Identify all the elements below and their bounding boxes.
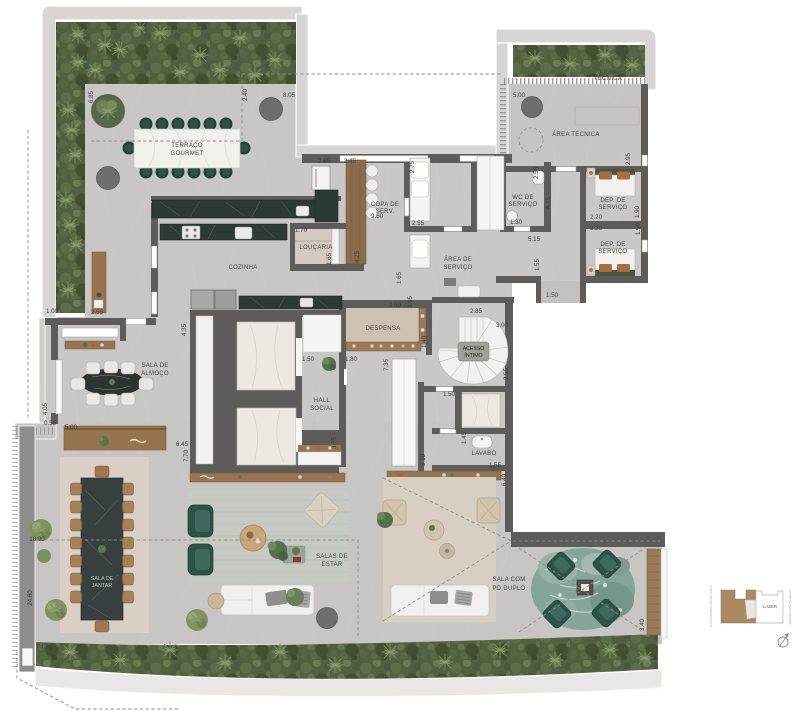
svg-text:1.65: 1.65: [326, 252, 333, 265]
svg-text:SOCIAL: SOCIAL: [310, 406, 334, 412]
svg-text:2.20: 2.20: [590, 214, 603, 221]
svg-text:5.15: 5.15: [528, 236, 541, 243]
svg-text:SERVIÇO: SERVIÇO: [509, 202, 538, 208]
svg-text:1.80: 1.80: [345, 356, 358, 363]
svg-text:SERVIÇO: SERVIÇO: [599, 205, 628, 211]
svg-text:1.50: 1.50: [546, 292, 559, 299]
svg-text:4.05: 4.05: [42, 402, 49, 415]
svg-text:COZINHA: COZINHA: [228, 265, 257, 271]
svg-text:2.45: 2.45: [344, 158, 357, 165]
svg-text:SALA COM: SALA COM: [492, 577, 525, 583]
svg-text:1.90: 1.90: [634, 205, 641, 218]
svg-text:0.55: 0.55: [44, 420, 57, 427]
svg-text:2.65: 2.65: [318, 158, 331, 165]
svg-text:4.25: 4.25: [354, 250, 361, 263]
svg-text:24.60: 24.60: [27, 590, 34, 606]
svg-text:DEP. DE: DEP. DE: [600, 198, 625, 204]
svg-text:DESPENSA: DESPENSA: [365, 326, 400, 332]
svg-text:6.85: 6.85: [88, 90, 95, 103]
svg-text:4.10: 4.10: [160, 227, 173, 234]
svg-text:2.85: 2.85: [470, 308, 483, 315]
svg-text:1.70: 1.70: [295, 227, 308, 234]
svg-text:7.35: 7.35: [383, 358, 390, 371]
svg-text:7.70: 7.70: [183, 449, 190, 462]
svg-text:6.40: 6.40: [501, 473, 508, 486]
svg-text:3.05: 3.05: [407, 295, 414, 308]
svg-text:1.55: 1.55: [489, 462, 502, 469]
svg-text:2.75: 2.75: [409, 160, 416, 173]
svg-text:2.95: 2.95: [625, 152, 632, 165]
svg-text:1.65: 1.65: [396, 271, 403, 284]
svg-text:SALAS DE: SALAS DE: [316, 554, 348, 560]
svg-text:6.45: 6.45: [176, 441, 189, 448]
svg-text:2.55: 2.55: [533, 166, 540, 179]
svg-text:ÁREA DE: ÁREA DE: [444, 256, 472, 263]
svg-text:ÍNTIMO: ÍNTIMO: [464, 352, 482, 359]
svg-text:WC DE: WC DE: [512, 195, 534, 201]
svg-text:8.05: 8.05: [283, 92, 296, 99]
svg-text:ÁREA TÉCNICA: ÁREA TÉCNICA: [552, 131, 600, 138]
svg-text:ÁREA: ÁREA: [599, 69, 617, 76]
svg-text:SALA DE: SALA DE: [141, 363, 168, 369]
svg-text:JANTAR: JANTAR: [92, 583, 113, 589]
svg-text:PD DUPLO: PD DUPLO: [492, 586, 525, 592]
svg-text:HALL: HALL: [314, 398, 331, 404]
svg-text:2.40: 2.40: [242, 88, 249, 101]
svg-text:ACESSO: ACESSO: [463, 346, 485, 352]
svg-text:SERVIÇO: SERVIÇO: [444, 265, 473, 271]
svg-text:9.60: 9.60: [389, 302, 402, 309]
svg-text:1.55: 1.55: [534, 258, 541, 271]
svg-text:LOUÇARIA: LOUÇARIA: [299, 245, 332, 251]
svg-text:SERVIÇO: SERVIÇO: [599, 249, 628, 255]
svg-text:DEP. DE: DEP. DE: [600, 242, 625, 248]
svg-text:5.00: 5.00: [65, 424, 78, 431]
svg-text:LAZER: LAZER: [763, 604, 777, 609]
svg-text:5.00: 5.00: [513, 92, 526, 99]
svg-text:1.30: 1.30: [510, 219, 523, 226]
svg-text:GOURMET: GOURMET: [171, 151, 204, 157]
svg-text:3.75: 3.75: [331, 436, 338, 449]
svg-text:SALA DE: SALA DE: [91, 576, 114, 582]
svg-text:1.40: 1.40: [421, 335, 428, 348]
svg-text:3.40: 3.40: [639, 618, 646, 631]
svg-text:2.55: 2.55: [503, 367, 510, 380]
svg-text:TERRAÇO: TERRAÇO: [171, 143, 202, 149]
svg-text:ESTAR: ESTAR: [321, 562, 342, 568]
svg-text:2.55: 2.55: [91, 309, 104, 316]
svg-text:2.20: 2.20: [590, 225, 603, 232]
svg-text:1.90: 1.90: [635, 222, 642, 235]
svg-text:9.60: 9.60: [371, 213, 384, 220]
svg-text:AVENIDA JOSÉ DE MELLO: AVENIDA JOSÉ DE MELLO: [787, 589, 792, 625]
svg-text:RUA CORONEL OSCAR PORTO: RUA CORONEL OSCAR PORTO: [709, 584, 713, 626]
svg-text:COPA DE: COPA DE: [371, 202, 399, 208]
svg-text:4.15: 4.15: [545, 196, 552, 209]
svg-text:ALMOÇO: ALMOÇO: [141, 371, 169, 377]
svg-text:4.35: 4.35: [181, 323, 188, 336]
svg-text:1.50: 1.50: [302, 356, 315, 363]
svg-text:1.45: 1.45: [461, 431, 468, 444]
svg-text:TÉCNICA: TÉCNICA: [594, 75, 622, 82]
svg-text:1.00: 1.00: [46, 308, 59, 315]
svg-text:LAVABO: LAVABO: [472, 451, 497, 457]
svg-text:2.55: 2.55: [412, 220, 425, 227]
svg-text:3.10: 3.10: [420, 453, 427, 466]
svg-text:1.50: 1.50: [443, 391, 456, 398]
svg-text:18.90: 18.90: [29, 536, 45, 543]
svg-text:3.00: 3.00: [496, 322, 509, 329]
